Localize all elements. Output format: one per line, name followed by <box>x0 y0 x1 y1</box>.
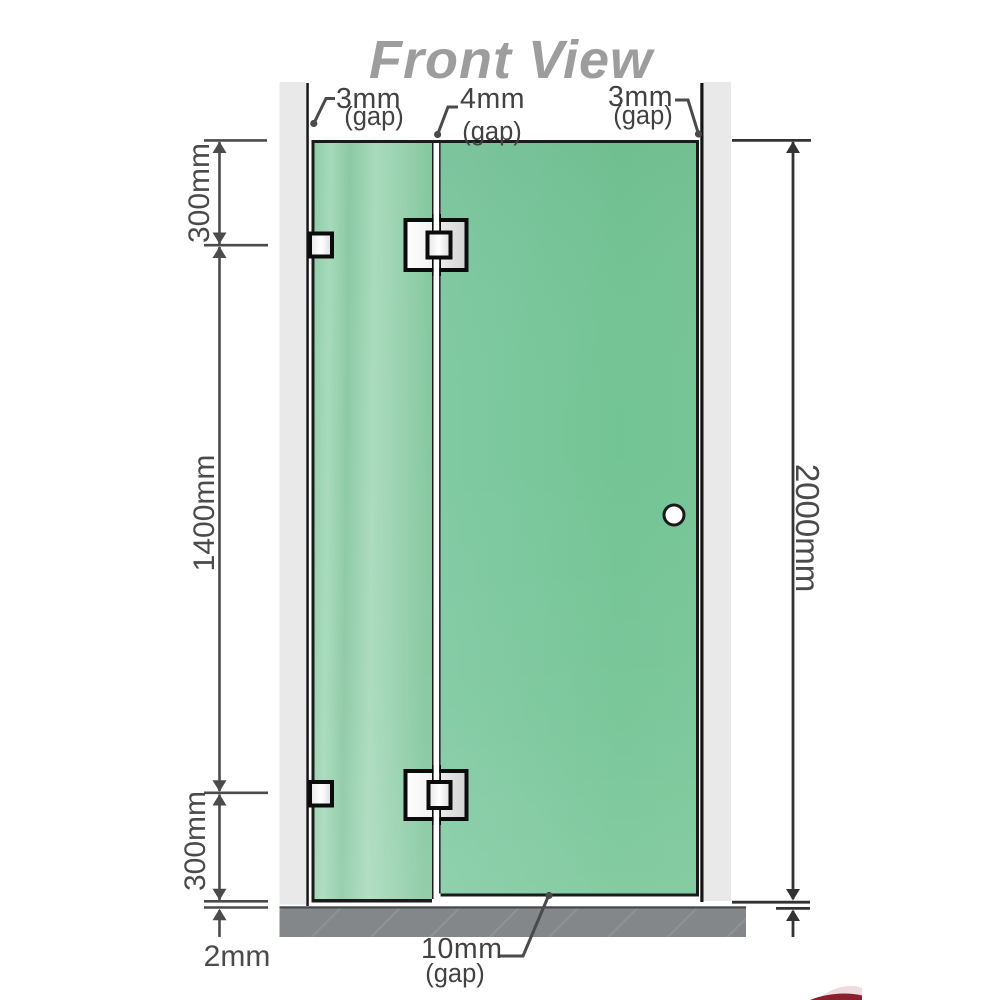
svg-text:(gap): (gap) <box>344 103 404 131</box>
svg-text:1400mm: 1400mm <box>188 455 221 572</box>
svg-text:2mm: 2mm <box>204 940 271 973</box>
svg-text:2000mm: 2000mm <box>789 464 826 592</box>
svg-text:(gap): (gap) <box>462 118 522 146</box>
svg-text:(gap): (gap) <box>613 102 673 130</box>
svg-text:4mm: 4mm <box>460 83 525 115</box>
svg-text:300mm: 300mm <box>179 791 212 891</box>
svg-text:(gap): (gap) <box>425 960 485 988</box>
svg-text:300mm: 300mm <box>183 143 216 243</box>
